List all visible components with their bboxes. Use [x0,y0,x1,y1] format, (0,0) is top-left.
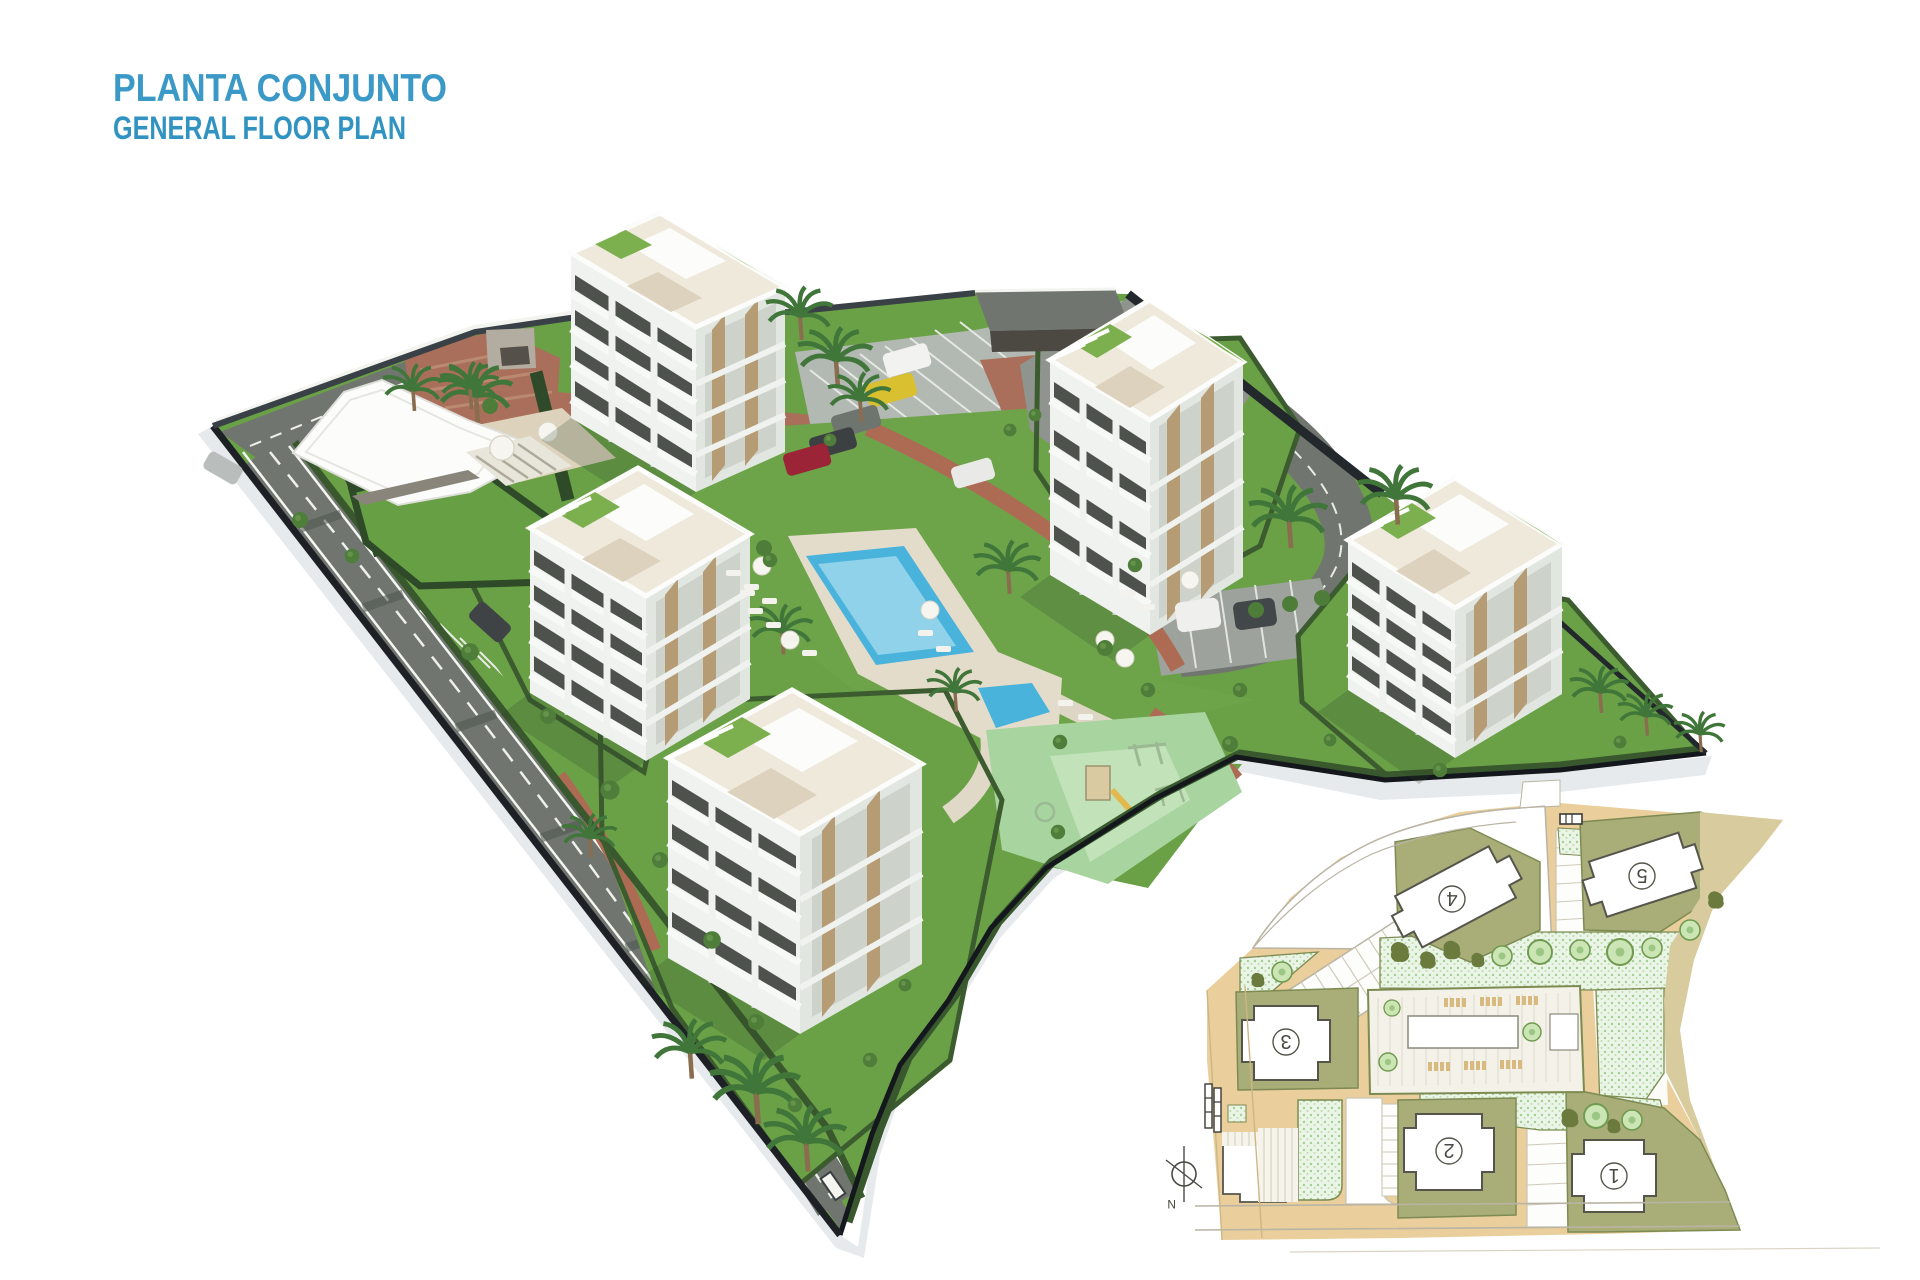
svg-text:PLANTA CONJUNTO: PLANTA CONJUNTO [113,67,447,110]
svg-text:2: 2 [1443,1139,1454,1161]
svg-text:3: 3 [1280,1030,1291,1052]
svg-text:GENERAL FLOOR PLAN: GENERAL FLOOR PLAN [113,110,406,146]
svg-text:4: 4 [1446,887,1457,909]
svg-text:5: 5 [1636,864,1647,886]
svg-text:N: N [1167,1197,1176,1211]
svg-text:1: 1 [1608,1164,1619,1186]
